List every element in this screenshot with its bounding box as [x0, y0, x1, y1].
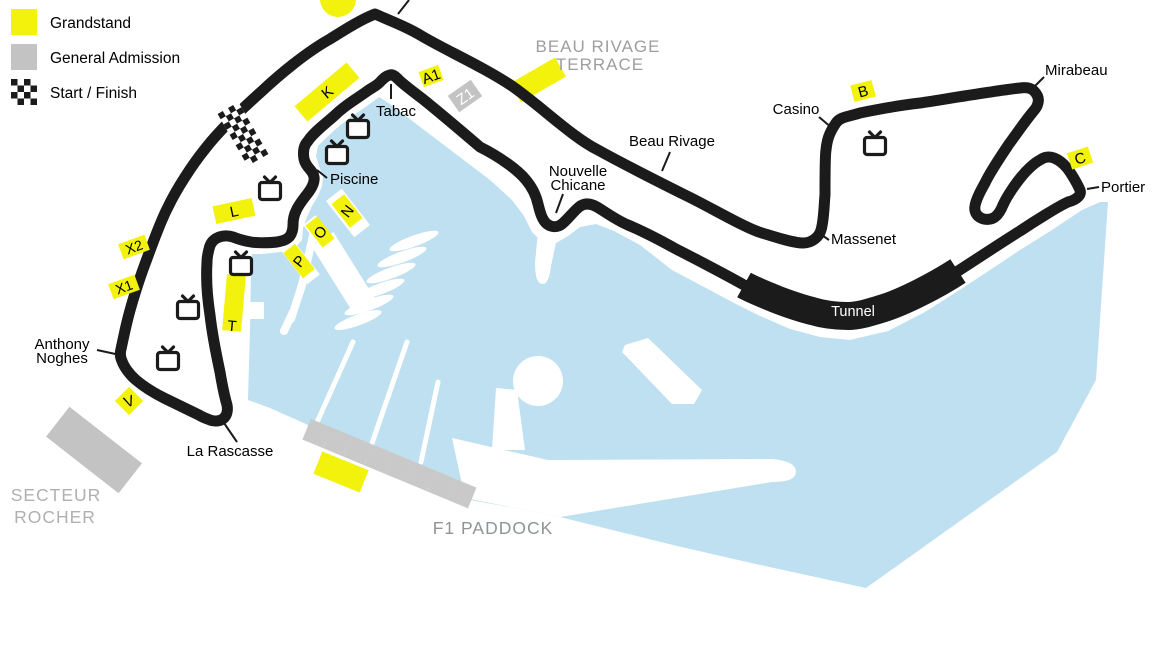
svg-text:Chicane: Chicane	[550, 177, 605, 194]
svg-text:SECTEUR: SECTEUR	[11, 485, 102, 505]
svg-text:Grandstand: Grandstand	[50, 15, 131, 32]
svg-text:Massenet: Massenet	[831, 231, 897, 248]
svg-text:BEAU RIVAGE: BEAU RIVAGE	[536, 37, 661, 56]
svg-text:Start / Finish: Start / Finish	[50, 85, 137, 102]
svg-text:T: T	[227, 318, 238, 336]
svg-text:Piscine: Piscine	[330, 171, 378, 188]
svg-text:Beau Rivage: Beau Rivage	[629, 133, 715, 150]
svg-text:General Admission: General Admission	[50, 50, 180, 67]
svg-text:ROCHER: ROCHER	[14, 507, 96, 527]
svg-text:Noghes: Noghes	[36, 350, 88, 367]
svg-text:Casino: Casino	[773, 101, 820, 118]
svg-text:Portier: Portier	[1101, 179, 1145, 196]
svg-text:Tabac: Tabac	[376, 103, 417, 120]
svg-text:La Rascasse: La Rascasse	[187, 443, 274, 460]
svg-text:Tunnel: Tunnel	[831, 304, 875, 320]
svg-text:F1 PADDOCK: F1 PADDOCK	[433, 518, 554, 538]
svg-text:TERRACE: TERRACE	[556, 55, 644, 74]
svg-text:Mirabeau: Mirabeau	[1045, 62, 1108, 79]
